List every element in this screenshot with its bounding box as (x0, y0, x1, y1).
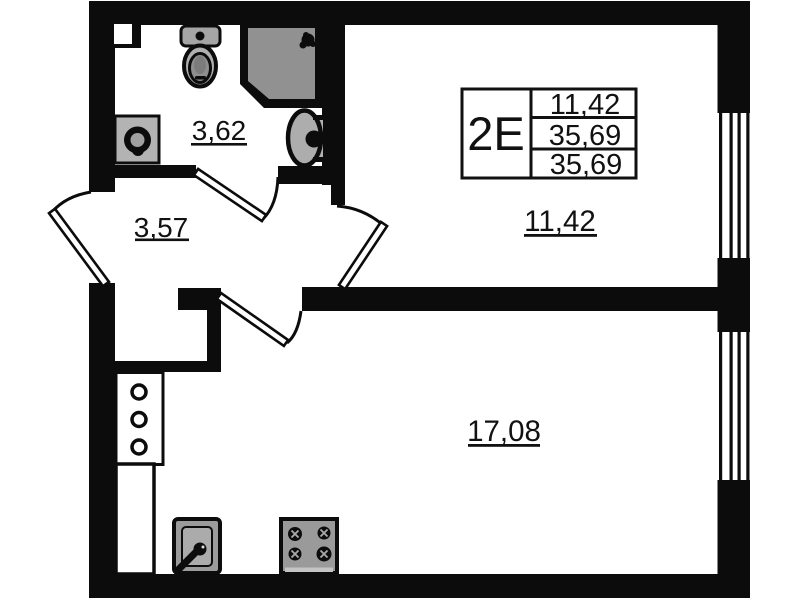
svg-text:35,69: 35,69 (550, 149, 623, 181)
svg-text:3,62: 3,62 (192, 115, 247, 146)
svg-text:11,42: 11,42 (550, 89, 620, 121)
svg-text:11,42: 11,42 (524, 205, 596, 238)
svg-text:17,08: 17,08 (467, 415, 541, 448)
svg-text:2E: 2E (467, 107, 525, 160)
svg-text:35,69: 35,69 (549, 120, 622, 152)
svg-text:3,57: 3,57 (134, 212, 189, 243)
